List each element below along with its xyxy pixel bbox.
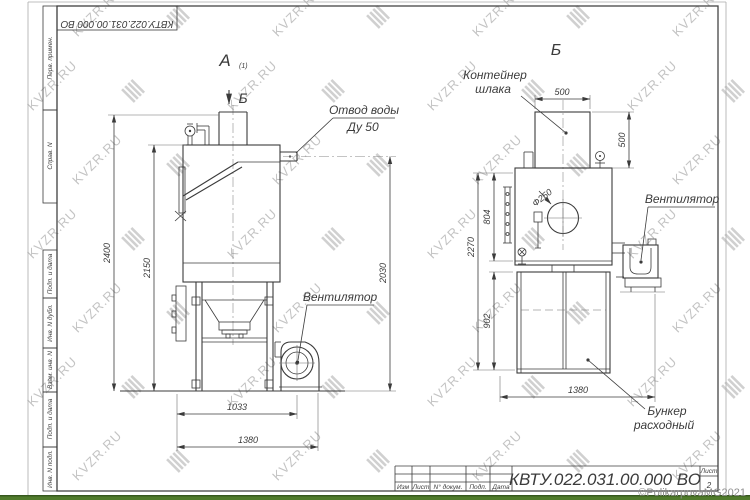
margin-field-inv-dubl: Инв. N дубл. [46, 304, 54, 342]
label-fan-b: Вентилятор [645, 192, 720, 206]
view-a-subscript: (1) [239, 63, 248, 70]
dim-b-hole: Ф250 [530, 187, 554, 209]
drawing-sheet: KVZR.RUKVZR.RUKVZR.RUKVZR.RUKVZR.RUKVZR.… [0, 0, 750, 500]
dim-a-body-h: 2150 [142, 258, 152, 279]
dim-a-outlet-h: 2030 [378, 263, 388, 284]
dim-b-cont-h: 500 [617, 132, 627, 147]
dim-b-cont-w: 500 [554, 87, 569, 97]
tb-col-doc: N° докум. [434, 483, 463, 491]
margin-field-podp2: Подп. и дата [46, 398, 54, 439]
margin-field-vzam: Взам. инв. N [47, 351, 54, 389]
section-mark-b: Б [238, 90, 247, 106]
dim-a-total-h: 2400 [102, 243, 112, 264]
margin-field-podp1: Подп. и дата [46, 253, 54, 294]
dim-a-w2: 1380 [238, 435, 258, 445]
label-slag-container-1: Контейнер [463, 68, 527, 82]
view-b-title: Б [551, 42, 561, 59]
label-bunker-2: расходный [633, 418, 695, 432]
view-a: А (1) Б [102, 51, 399, 451]
sheet-frame [28, 2, 726, 496]
machine-a [120, 112, 396, 391]
margin-field-perv: Перв. примен. [47, 36, 54, 79]
dim-b-bunker-h: 902 [482, 313, 492, 328]
technical-drawing: КВТУ.022.031.00.000 ВО Перв. примен. Спр… [0, 0, 750, 500]
view-a-title: А [218, 51, 230, 70]
label-slag-container-2: шлака [475, 82, 511, 96]
label-bunker-1: Бункер [647, 404, 686, 418]
dim-a-w1: 1033 [227, 402, 247, 412]
label-water-outlet-dn: Ду 50 [345, 120, 379, 134]
top-doc-number: КВТУ.022.031.00.000 ВО [60, 18, 173, 29]
tb-col-podp: Подп. [469, 483, 486, 491]
view-b: Б [463, 42, 719, 432]
labels-a: Отвод воды Ду 50 Вентилятор [296, 103, 399, 364]
tb-col-data: Дата [491, 484, 510, 491]
dim-b-gauge-h: 804 [482, 209, 492, 224]
labels-b: Контейнер шлака Вентилятор Бункер расход… [463, 68, 719, 432]
dims-a: 2400 2150 2030 1033 1380 [102, 115, 396, 451]
label-water-outlet: Отвод воды [329, 103, 399, 117]
dim-b-total-h: 2270 [466, 237, 476, 258]
margin-stamps: Перв. примен. Справ. N Подп. и дата Инв.… [43, 6, 57, 491]
machine-b [503, 112, 665, 373]
label-fan-a: Вентилятор [303, 290, 378, 304]
margin-field-inv-podl: Инв. N подл. [46, 450, 54, 488]
margin-field-sprav: Справ. N [47, 142, 54, 170]
copyright-watermark: ©PolikarpovaMG2021 [638, 487, 746, 499]
tb-sheet-label: Лист [700, 468, 718, 475]
tb-col-list: Лист [412, 484, 430, 491]
tb-col-izm: Изм [397, 484, 410, 491]
dim-b-depth: 1380 [568, 385, 588, 395]
top-stamp: КВТУ.022.031.00.000 ВО [57, 6, 177, 30]
